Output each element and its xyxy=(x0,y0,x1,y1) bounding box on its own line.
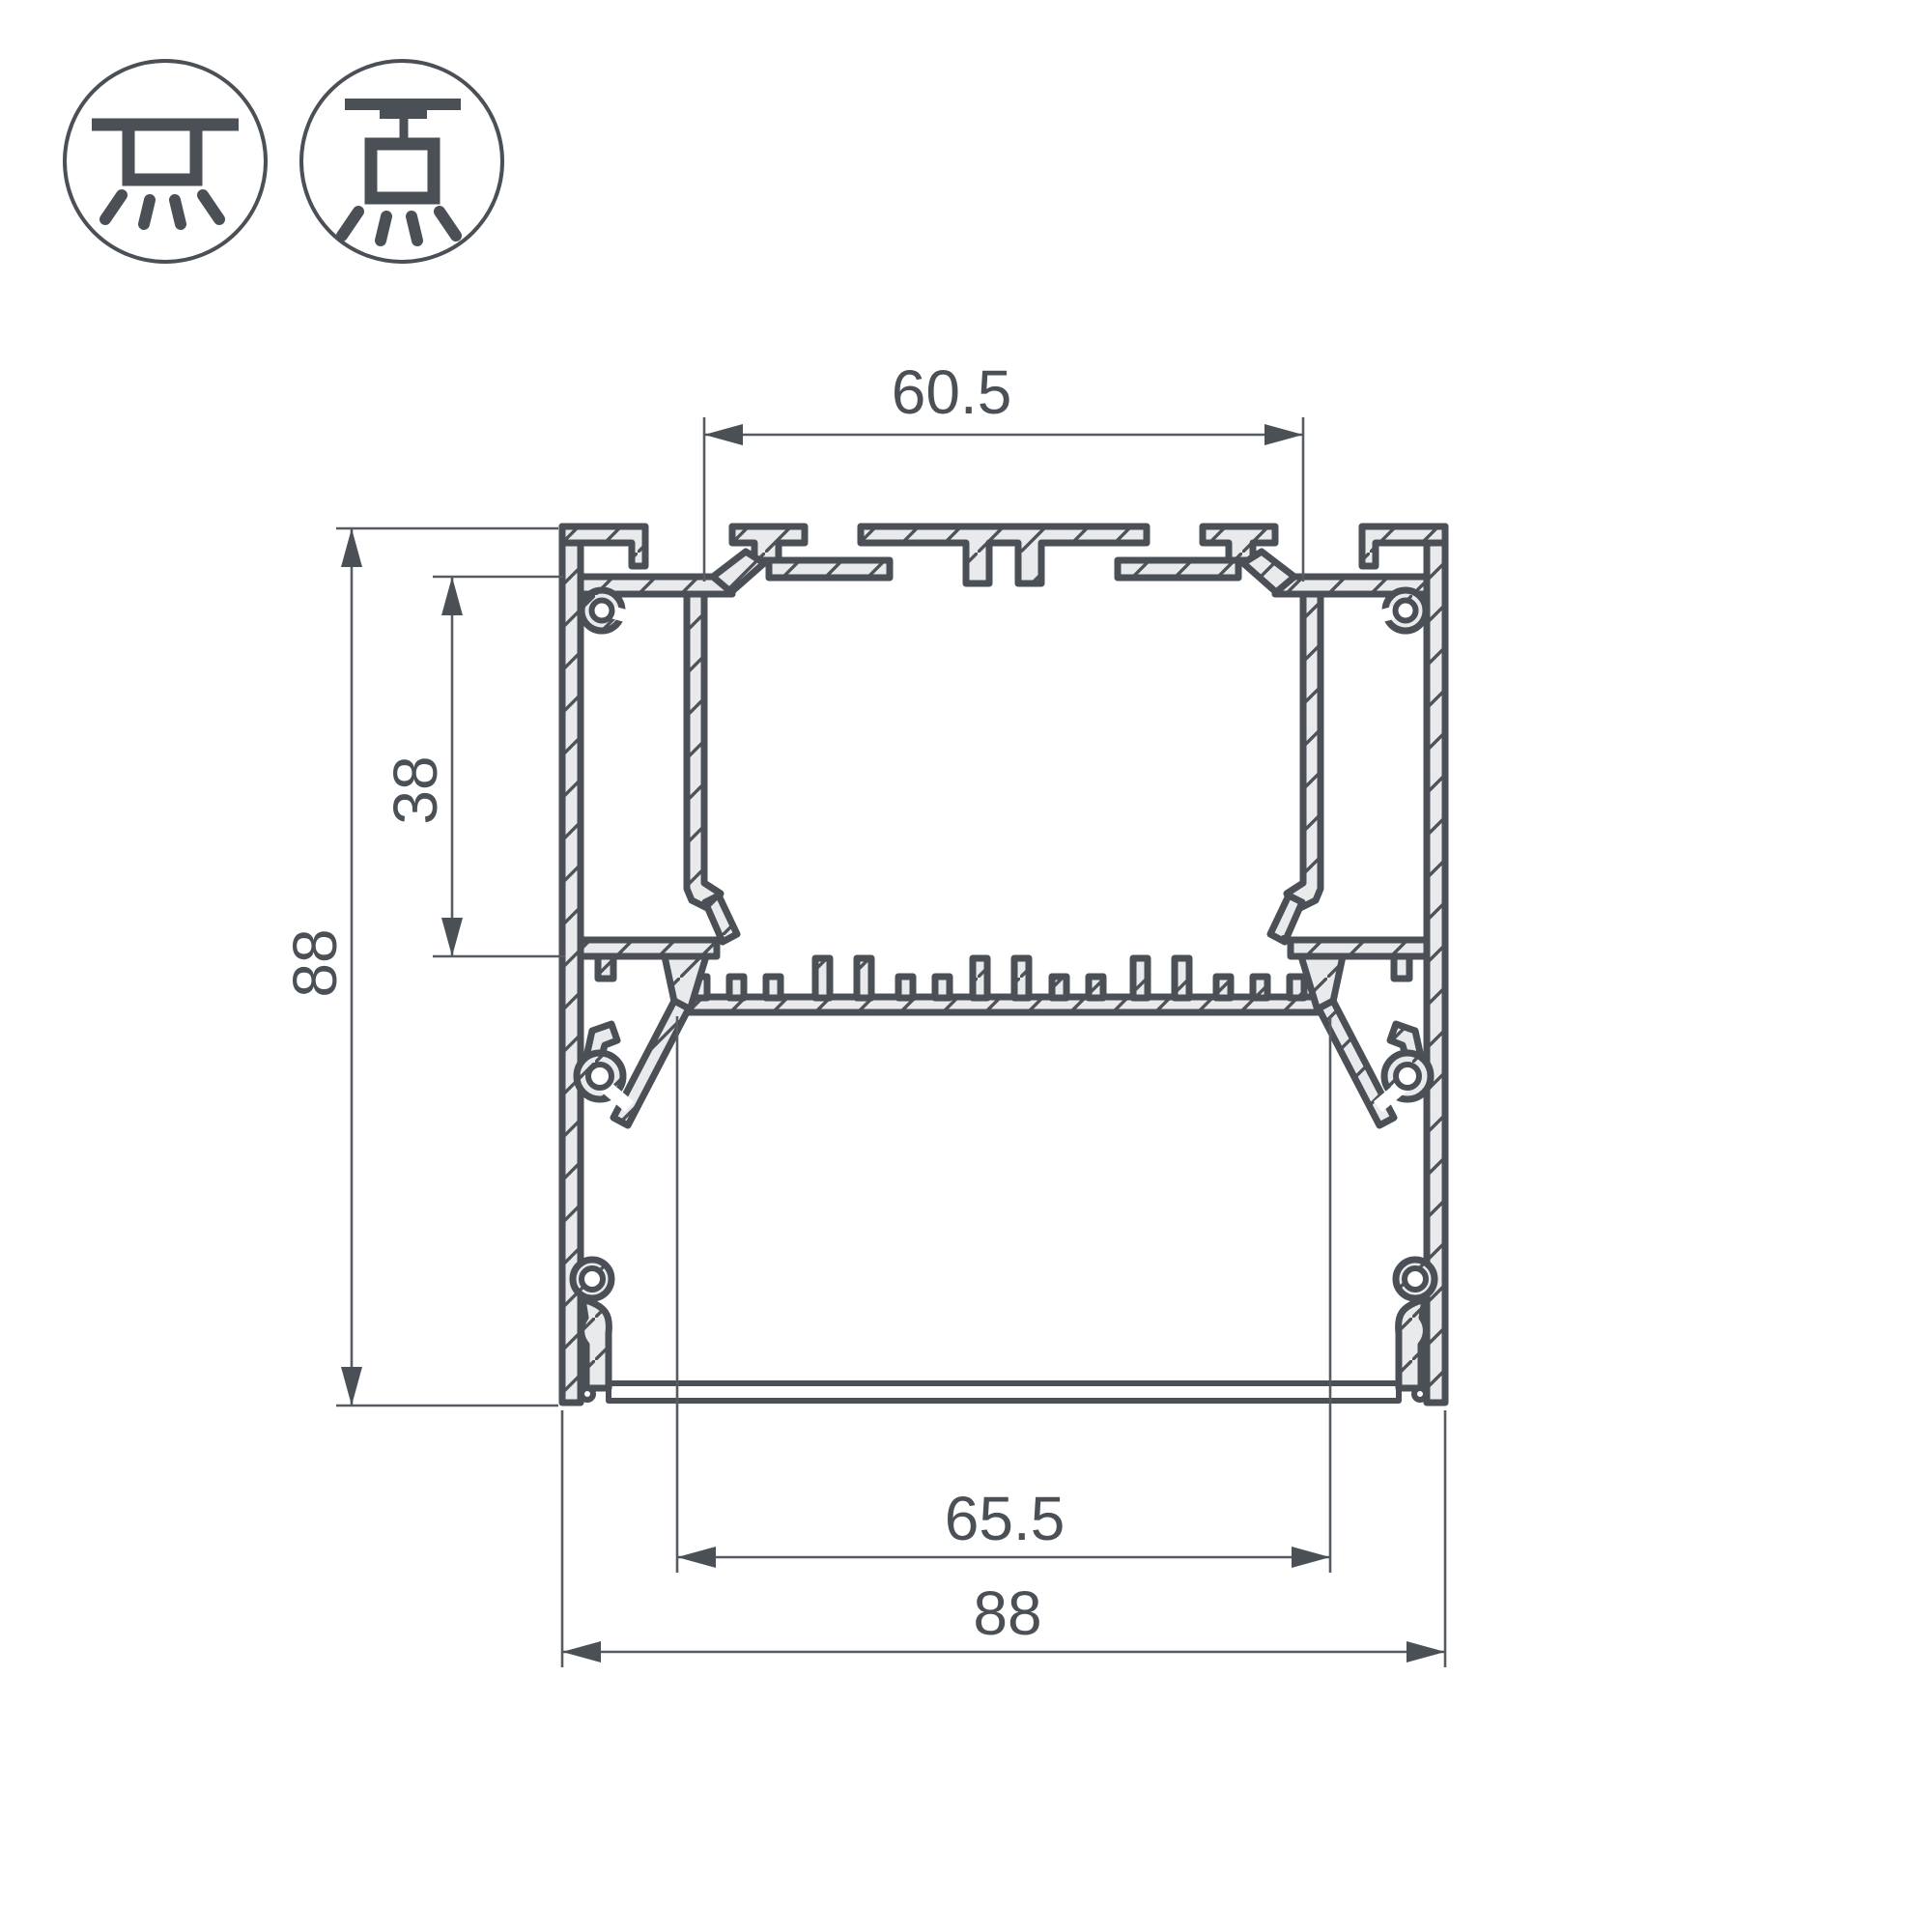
arrowhead-top xyxy=(441,577,463,615)
dimension-inner-width: 65.5 xyxy=(677,1016,1330,1573)
arrowhead-right xyxy=(1292,1547,1330,1568)
profile-left-half xyxy=(562,526,890,1403)
dimension-upper-section-height: 38 xyxy=(381,577,565,956)
surface-ceiling-mount-icon xyxy=(65,61,266,262)
arrowhead-right xyxy=(1264,424,1303,445)
dimension-value: 88 xyxy=(280,928,350,997)
arrowhead-left xyxy=(677,1547,716,1568)
heatsink-fins-tall xyxy=(815,958,1189,998)
dimension-value: 38 xyxy=(381,755,450,824)
icon-circle xyxy=(65,61,266,262)
arrowhead-bottom xyxy=(341,1367,362,1406)
arrowhead-left xyxy=(704,424,743,445)
arrowhead-right xyxy=(1406,1641,1445,1662)
arrowhead-top xyxy=(341,528,362,567)
light-rays xyxy=(342,212,456,241)
top-center-plate xyxy=(861,526,1147,583)
profile-drawing-canvas: 60.5 38 88 65.5 xyxy=(0,0,1932,1932)
drawing-page: 60.5 38 88 65.5 xyxy=(0,0,1932,1932)
light-rays xyxy=(105,195,219,224)
fixture-box xyxy=(128,127,196,180)
bottom-floor xyxy=(609,1383,1399,1401)
dimension-value: 60.5 xyxy=(892,357,1012,427)
arrowhead-bottom xyxy=(441,918,463,956)
arrowhead-left xyxy=(562,1641,601,1662)
dimension-value: 65.5 xyxy=(945,1484,1065,1553)
dimension-overall-height: 88 xyxy=(280,528,558,1406)
profile-right-half xyxy=(1118,526,1445,1403)
dimension-value: 88 xyxy=(973,1578,1041,1648)
fixture-box xyxy=(371,144,434,198)
profile-cross-section xyxy=(562,526,1445,1403)
dimension-top-channel-width: 60.5 xyxy=(704,357,1303,582)
mounting-icons xyxy=(65,61,502,262)
suspended-pendant-mount-icon xyxy=(301,61,502,262)
